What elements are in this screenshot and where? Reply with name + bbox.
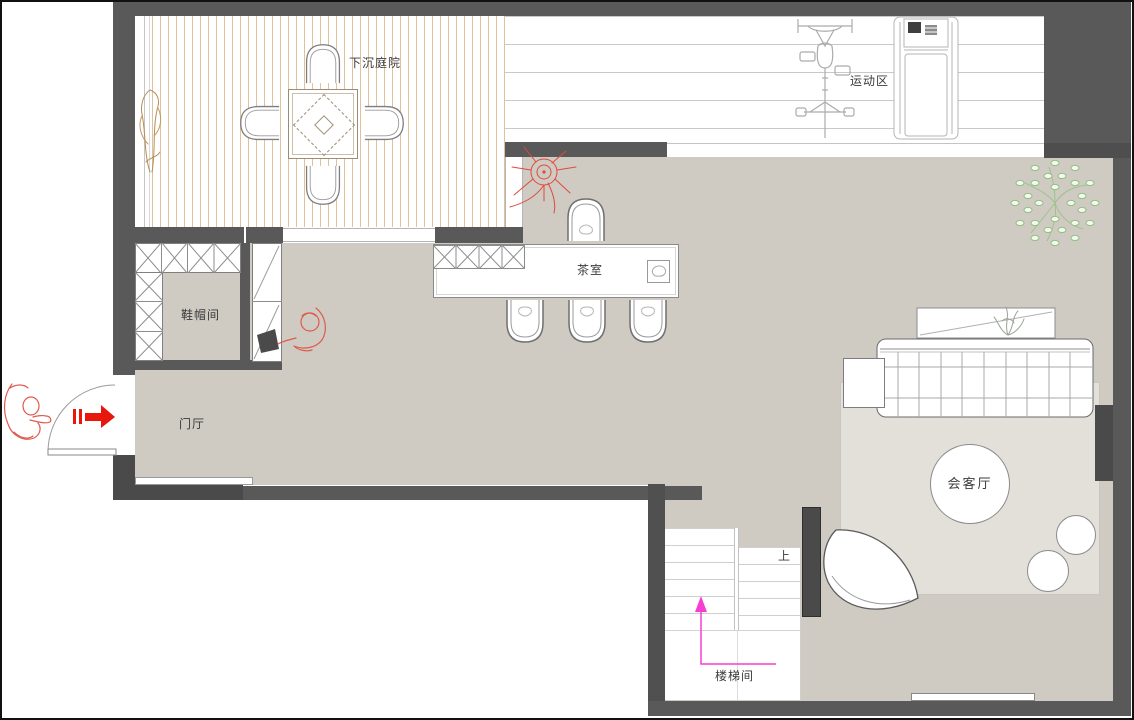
- tea-table-storage: [433, 245, 525, 269]
- chair: [238, 102, 280, 144]
- wall-segment: [435, 227, 523, 243]
- side-table: [843, 358, 885, 408]
- room-label-cloakroom: 鞋帽间: [181, 309, 220, 321]
- potted-tree: [1003, 151, 1107, 255]
- wall-segment: [113, 227, 135, 375]
- chair: [625, 299, 671, 345]
- wardrobe-side: [135, 272, 163, 361]
- chair: [302, 165, 344, 207]
- wall-segment: [1095, 405, 1113, 481]
- wall-segment: [113, 2, 1131, 16]
- exercise-floor: [505, 16, 1044, 144]
- wall-segment: [246, 227, 283, 243]
- wall-segment: [113, 484, 243, 500]
- console-art: [916, 307, 1056, 339]
- entry-arrow: [70, 402, 118, 430]
- chair: [502, 299, 548, 345]
- sofa: [876, 338, 1094, 418]
- wall-segment: [240, 243, 250, 363]
- wardrobe-top: [135, 243, 241, 273]
- person-sketch: [0, 376, 52, 448]
- chair: [302, 42, 344, 84]
- plant-sketch: [130, 84, 172, 176]
- window: [911, 693, 1035, 701]
- window: [135, 477, 253, 485]
- room-label-exercise: 运动区: [850, 75, 889, 87]
- window: [283, 228, 435, 242]
- room-label-courtyard: 下沉庭院: [349, 57, 401, 69]
- plant-sketch: [988, 303, 1028, 341]
- tea-tray: [647, 260, 670, 283]
- stair-direction-arrow: [692, 594, 782, 670]
- stairs-up-label: 上: [778, 550, 790, 562]
- room-label-reception: 会客厅: [947, 478, 992, 491]
- lounge-chair: [818, 526, 928, 628]
- wall-segment: [1044, 14, 1131, 143]
- wall-segment: [1113, 158, 1131, 716]
- exercise-bike: [794, 16, 856, 142]
- stair-line: [800, 617, 801, 701]
- chair: [364, 102, 406, 144]
- treadmill: [891, 14, 961, 142]
- courtyard-table: [288, 89, 358, 159]
- chair: [564, 299, 610, 345]
- floor-plan: 会客厅 下沉庭院 运动区 鞋帽间 门厅 茶室 楼梯间 上: [0, 0, 1134, 720]
- room-label-tearoom: 茶室: [577, 264, 603, 276]
- flower-sketch: [500, 137, 588, 217]
- pouf: [1056, 515, 1096, 555]
- wall-segment: [648, 701, 1131, 716]
- wall-segment: [648, 484, 665, 701]
- stair-landing-notch: [739, 528, 800, 547]
- wall-segment: [243, 486, 702, 500]
- room-label-stairwell: 楼梯间: [715, 670, 754, 682]
- room-label-foyer: 门厅: [179, 418, 205, 430]
- coffee-table: 会客厅: [930, 444, 1010, 524]
- pouf: [1027, 550, 1069, 592]
- person-sketch: [276, 296, 330, 354]
